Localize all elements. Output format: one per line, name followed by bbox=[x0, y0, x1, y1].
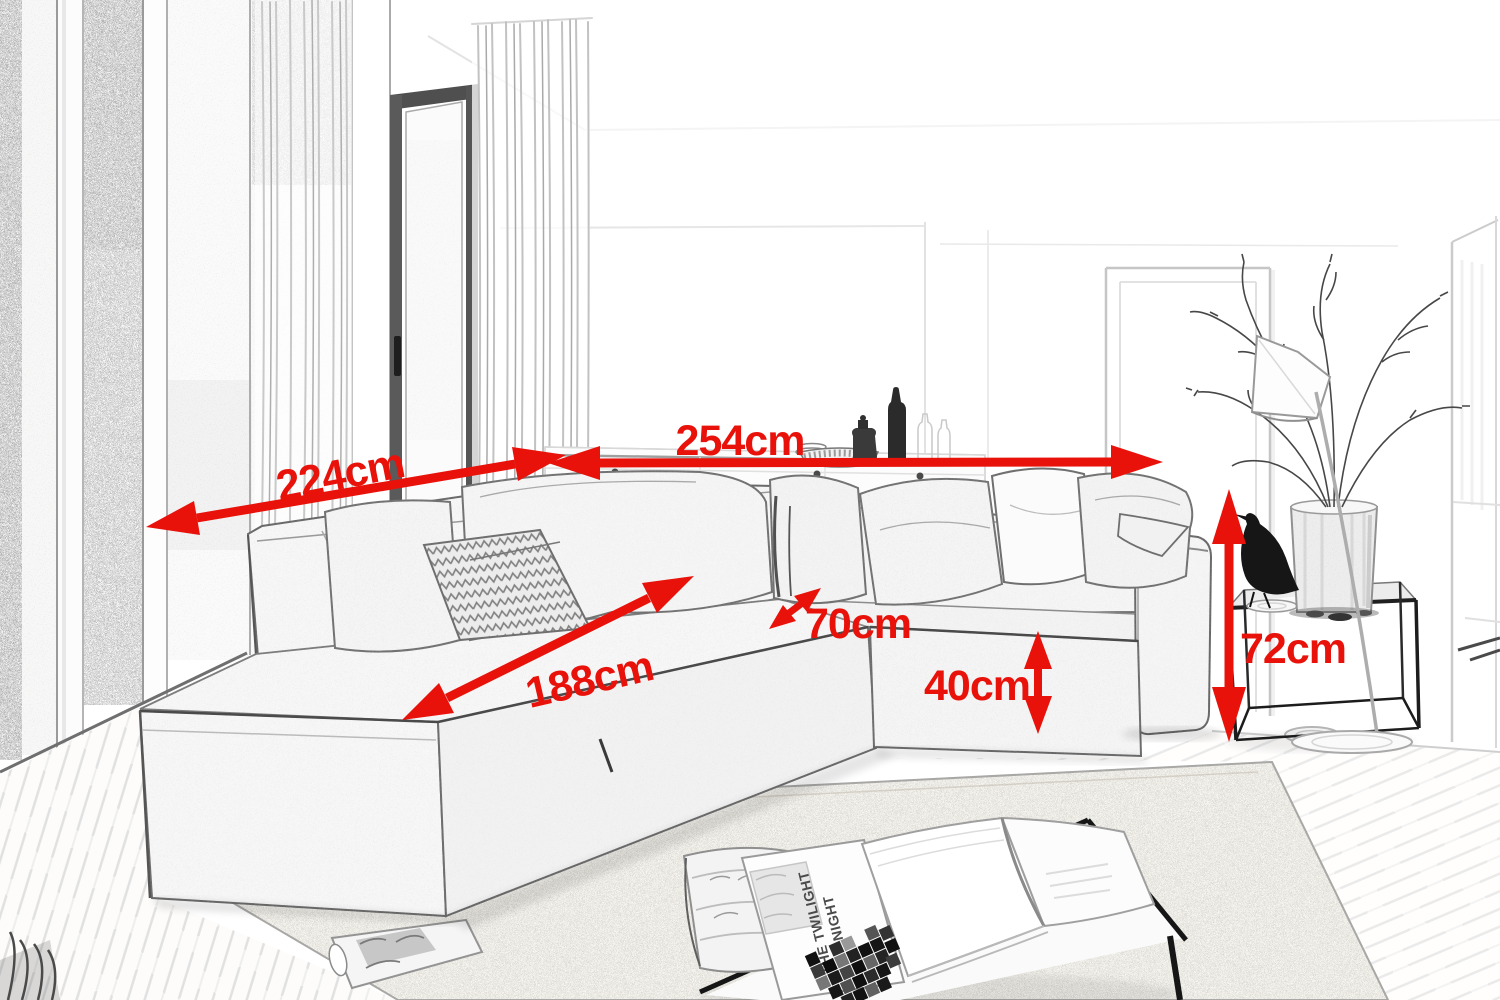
pillow-right-1 bbox=[860, 479, 1002, 605]
dim-label-72cm: 72cm bbox=[1240, 625, 1346, 673]
dim-label-70cm: 70cm bbox=[805, 600, 911, 648]
ceiling-line bbox=[585, 120, 1500, 130]
small-plate bbox=[1247, 600, 1297, 612]
door-handle bbox=[394, 336, 401, 376]
sideboard-knob bbox=[917, 473, 924, 480]
hallway-doorway bbox=[1452, 216, 1500, 748]
window-mullion-1 bbox=[57, 0, 83, 748]
carafe-lid bbox=[858, 420, 868, 429]
outdoor-tree-texture bbox=[83, 0, 143, 250]
wall-seam-right bbox=[940, 244, 1398, 246]
door-frame-top bbox=[390, 84, 478, 110]
armrest-shadow bbox=[1122, 727, 1222, 741]
glass-pane-left bbox=[22, 0, 57, 755]
room-sketch: THE TWILIGHTNIGHT bbox=[0, 0, 1500, 1000]
window-mullion-2 bbox=[143, 0, 167, 705]
vase-shading-dark bbox=[1368, 515, 1370, 608]
carafe bbox=[852, 428, 877, 463]
pebble bbox=[1306, 611, 1324, 618]
door-glass-texture bbox=[408, 140, 460, 440]
glass-pane-mid bbox=[167, 0, 252, 660]
open-door-top bbox=[1452, 220, 1498, 242]
hall-baseboard bbox=[1453, 502, 1500, 622]
dim-label-254cm: 254cm bbox=[676, 417, 805, 465]
carafe-knob bbox=[860, 415, 866, 421]
dim-label-40cm: 40cm bbox=[924, 662, 1030, 710]
pebble bbox=[1328, 613, 1352, 621]
open-door-shading bbox=[1462, 260, 1482, 510]
outdoor-wall-edge-texture bbox=[0, 0, 22, 760]
wine-bottle bbox=[888, 387, 906, 465]
sketch-room-scene: THE TWILIGHTNIGHT bbox=[0, 0, 1500, 1000]
pillow-corner bbox=[770, 476, 866, 604]
chaise-front-face bbox=[140, 711, 446, 916]
edge-furniture-sketch bbox=[1458, 638, 1500, 660]
